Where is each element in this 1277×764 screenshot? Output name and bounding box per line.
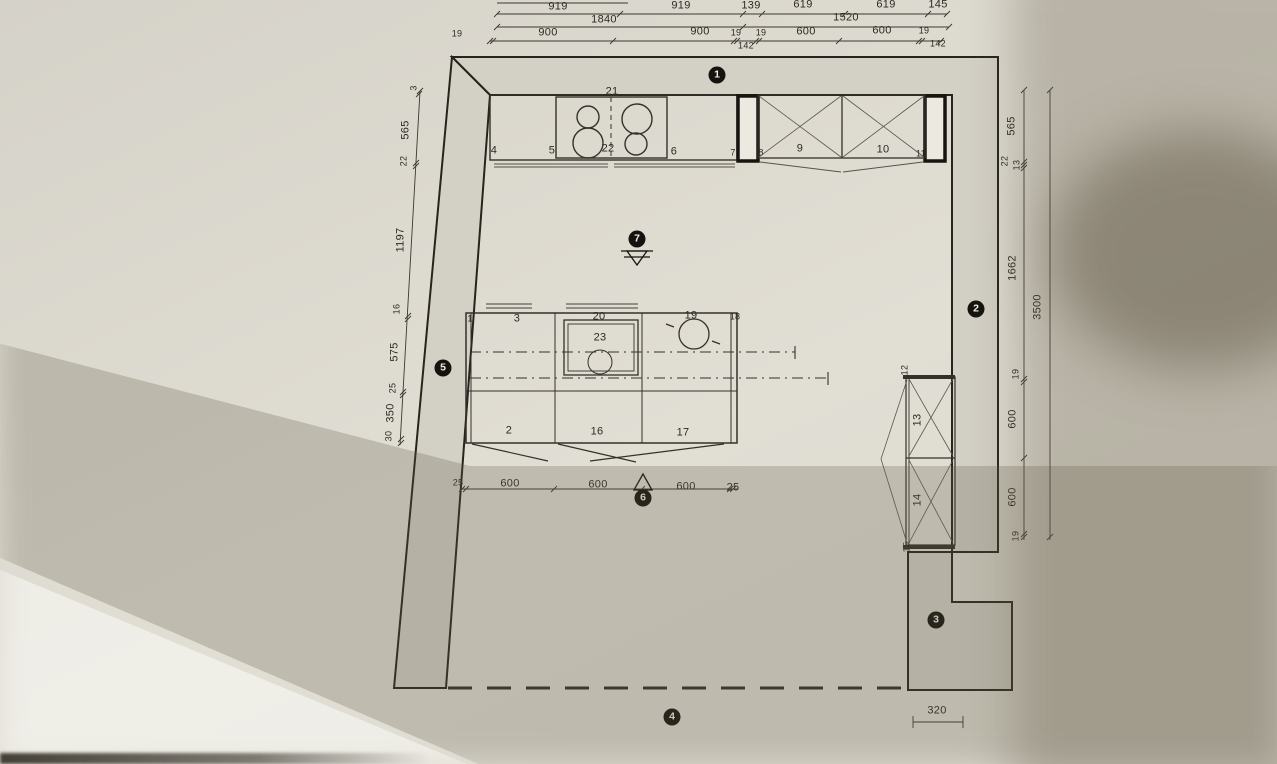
item-label-18: 18 — [730, 313, 741, 322]
marker-7: 7 — [629, 231, 646, 248]
dim-right-19b: 19 — [1012, 531, 1021, 542]
island-dash-axis — [470, 346, 828, 385]
item-label-3: 3 — [514, 314, 520, 325]
dim-left-30: 30 — [385, 431, 394, 442]
marker-6: 6 — [635, 490, 652, 507]
dim-top3-19c: 19 — [756, 29, 767, 38]
top-and-right-wall — [452, 57, 998, 552]
dim-island-25b: 25 — [727, 483, 740, 494]
item-label-20: 20 — [593, 312, 606, 323]
dim-left-565: 565 — [401, 120, 412, 139]
item-label-12: 12 — [901, 365, 910, 376]
marker-4: 4 — [664, 709, 681, 726]
dim-top1-919b: 919 — [671, 1, 690, 12]
marker-3: 3 — [928, 612, 945, 629]
dim-top1-619a: 619 — [793, 0, 812, 11]
item-label-9: 9 — [797, 144, 803, 155]
dim-top3-600b: 600 — [872, 26, 891, 37]
dim-left-1197: 1197 — [396, 228, 407, 253]
item-label-14: 14 — [913, 494, 924, 507]
burner — [622, 104, 652, 134]
dim-right-13: 13 — [1013, 160, 1022, 171]
dim-top1-619b: 619 — [876, 0, 895, 11]
item-label-5: 5 — [549, 146, 555, 157]
dim-top1-139: 139 — [741, 1, 760, 12]
dim-top1-145: 145 — [928, 0, 947, 11]
marker-5: 5 — [435, 360, 452, 377]
dim-top2-1840: 1840 — [591, 15, 617, 26]
burner — [573, 128, 603, 158]
dim-top3-600a: 600 — [796, 27, 815, 38]
dim-top3-900b: 900 — [690, 27, 709, 38]
dim-top3-142b: 142 — [930, 40, 946, 49]
burner — [577, 106, 599, 128]
dim-right-600a: 600 — [1008, 409, 1019, 428]
dim-right-565: 565 — [1007, 116, 1018, 135]
sink-drain — [588, 350, 612, 374]
tall-cabinets-13-14 — [881, 377, 955, 547]
dim-top3-900a: 900 — [538, 28, 557, 39]
photo-of-floor-plan: 919 919 139 619 619 145 1840 1520 19 900… — [0, 0, 1277, 764]
item-label-17: 17 — [677, 428, 690, 439]
item-label-23: 23 — [594, 333, 607, 344]
dim-top1-919a: 919 — [548, 2, 567, 13]
dim-top3-142a: 142 — [738, 42, 754, 51]
dim-right-19a: 19 — [1012, 369, 1021, 380]
dim-left-3: 3 — [410, 85, 419, 90]
door-swings — [472, 444, 724, 462]
dim-top3-19b: 19 — [731, 29, 742, 38]
dim-left-575: 575 — [390, 342, 401, 361]
item-label-21: 21 — [606, 87, 619, 98]
dim-left-22: 22 — [400, 156, 409, 167]
dim-top2-1520: 1520 — [833, 13, 859, 24]
dim-island-600a: 600 — [500, 479, 519, 490]
sink — [564, 320, 638, 375]
item-label-10: 10 — [877, 145, 890, 156]
dim-island-600b: 600 — [588, 480, 607, 491]
item-label-13: 13 — [913, 414, 924, 427]
dim-left-16: 16 — [393, 304, 402, 315]
item-label-11: 11 — [916, 150, 926, 159]
dim-top3-19a: 19 — [452, 30, 463, 39]
dim-right-600b: 600 — [1008, 487, 1019, 506]
item-label-4: 4 — [491, 146, 497, 157]
dim-right-1662: 1662 — [1008, 255, 1019, 281]
tall-cabinets-9-10 — [758, 95, 925, 158]
dim-left-25: 25 — [389, 383, 398, 394]
dim-step-320: 320 — [927, 706, 946, 717]
burner — [625, 133, 647, 155]
item-label-16: 16 — [591, 427, 604, 438]
dim-top3-19d: 19 — [919, 27, 930, 36]
item-label-1: 1 — [467, 315, 472, 324]
dim-right-3500: 3500 — [1033, 294, 1044, 320]
dim-right-22: 22 — [1001, 156, 1010, 167]
item-label-19: 19 — [685, 311, 698, 322]
item-label-6: 6 — [671, 147, 677, 158]
counter-top-run — [490, 95, 923, 172]
dim-island-25a: 25 — [453, 479, 464, 488]
floor-plan-linework — [0, 0, 1277, 764]
dim-left-350: 350 — [386, 403, 397, 422]
marker-1: 1 — [709, 67, 726, 84]
item-label-8: 8 — [758, 149, 763, 158]
item-label-7: 7 — [730, 149, 735, 158]
dim-island-600c: 600 — [676, 482, 695, 493]
faucet — [666, 319, 720, 349]
bottom-right-wall-step — [908, 552, 1012, 690]
marker-2: 2 — [968, 301, 985, 318]
item-label-2: 2 — [506, 426, 512, 437]
island — [466, 304, 828, 462]
item-label-22: 22 — [602, 144, 615, 155]
item-label-15: 15 — [903, 542, 912, 553]
